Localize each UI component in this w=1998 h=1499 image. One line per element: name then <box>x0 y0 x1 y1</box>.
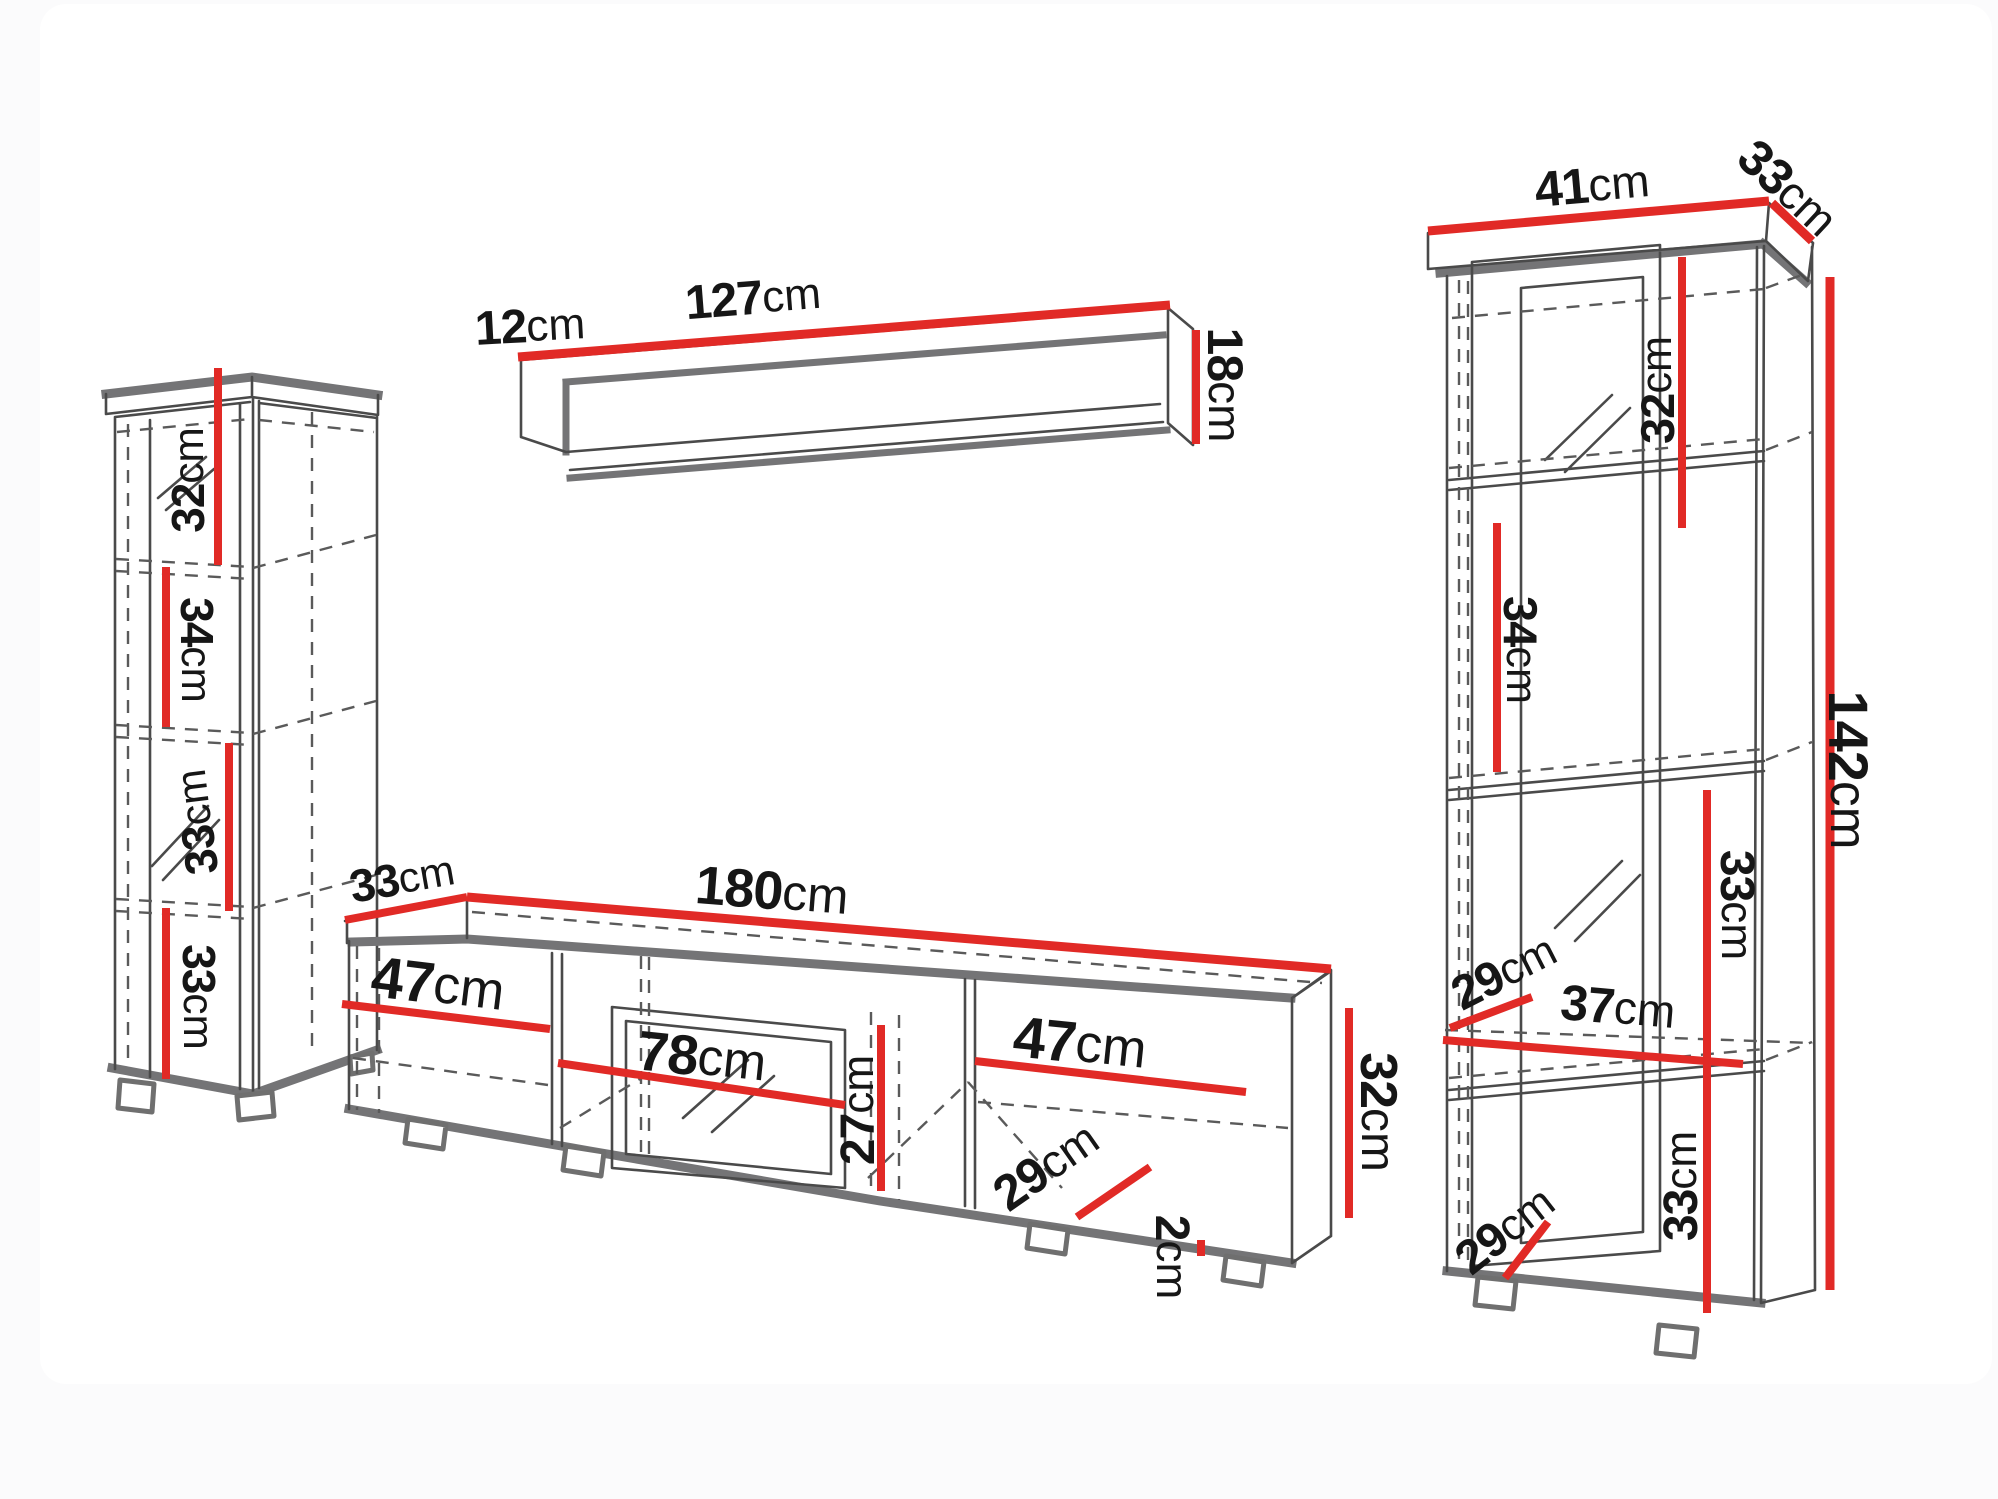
dim-label-shelf-127: 127cm <box>683 266 823 330</box>
dim-unit: cm <box>1820 781 1878 850</box>
dim-unit: cm <box>780 864 850 925</box>
dim-value: 33 <box>345 853 402 913</box>
dim-unit: cm <box>695 1027 769 1092</box>
left-cabinet: 32cm 34cm 33cm 33cm <box>106 368 378 1120</box>
dim-label-right-34: 34cm <box>1495 596 1548 704</box>
dim-unit: cm <box>1199 381 1251 442</box>
dim-unit: cm <box>1713 901 1762 960</box>
dim-value: 33 <box>1655 1190 1708 1241</box>
dim-label-right-depth-33: 33cm <box>1727 128 1849 247</box>
dim-value: 41 <box>1532 157 1590 217</box>
dim-label-tv-180: 180cm <box>693 855 851 927</box>
dim-unit: cm <box>166 767 220 829</box>
dim-label-right-142: 142cm <box>1818 690 1881 849</box>
furniture-dimension-diagram: 32cm 34cm 33cm 33cm 12cm 127cm 18cm <box>0 0 1998 1499</box>
dim-label-left-33b: 33cm <box>173 944 225 1050</box>
dim-line-shelf-127 <box>518 305 1170 357</box>
dim-label-left-34: 34cm <box>171 597 223 703</box>
dim-value: 127 <box>683 271 764 330</box>
dim-unit: cm <box>1073 1013 1150 1079</box>
dim-value: 37 <box>1558 974 1616 1034</box>
dim-unit: cm <box>834 1055 883 1114</box>
dim-unit: cm <box>760 268 823 321</box>
diagram-canvas: 32cm 34cm 33cm 33cm 12cm 127cm 18cm <box>0 0 1998 1499</box>
right-cabinet-outline <box>1428 203 1815 1303</box>
dim-value: 34 <box>171 597 223 648</box>
dim-unit: cm <box>1612 981 1678 1038</box>
dim-label-tv-27: 27cm <box>832 1055 885 1165</box>
dim-label-right-41: 41cm <box>1532 152 1651 218</box>
dim-unit: cm <box>525 299 586 351</box>
dim-value: 2 <box>1146 1215 1199 1241</box>
dim-value: 12 <box>474 300 528 356</box>
dim-line-tv-width-180 <box>467 897 1331 969</box>
dim-unit: cm <box>1497 646 1545 704</box>
dim-value: 32 <box>1631 394 1684 444</box>
right-cabinet: 41cm 33cm 32cm 34cm 142cm 33cm 29cm 37cm… <box>1428 128 1881 1357</box>
dim-line-right-inner-37 <box>1443 1040 1743 1064</box>
dim-label-tv-2: 2cm <box>1146 1215 1199 1300</box>
dim-value: 142 <box>1818 690 1881 780</box>
dim-label-left-32: 32cm <box>162 427 214 533</box>
dim-unit: cm <box>1148 1240 1197 1299</box>
dim-unit: cm <box>430 954 508 1021</box>
dim-label-right-33-upper: 33cm <box>1711 850 1764 960</box>
left-cabinet-panel-edges <box>106 377 378 1094</box>
dim-label-right-32: 32cm <box>1631 336 1684 444</box>
wall-shelf: 12cm 127cm 18cm <box>474 266 1253 478</box>
dim-unit: cm <box>176 993 223 1049</box>
dim-label-tv-78: 78cm <box>635 1018 770 1094</box>
dim-line-tv-inner-29 <box>1077 1167 1150 1217</box>
dim-label-tv-47-right: 47cm <box>1010 1004 1150 1083</box>
dim-unit: cm <box>1352 1108 1405 1172</box>
dim-label-left-33a: 33cm <box>164 766 228 877</box>
dim-unit: cm <box>1586 154 1652 211</box>
tv-stand: 33cm 180cm 47cm 78cm 27cm 47cm 29cm 2cm … <box>342 843 1407 1299</box>
left-cabinet-hidden-lines <box>116 412 376 1062</box>
wall-shelf-panel-edges <box>566 335 1167 478</box>
dim-unit: cm <box>165 427 212 483</box>
dim-value: 18 <box>1197 328 1253 382</box>
dim-value: 180 <box>693 855 785 922</box>
dim-value: 47 <box>368 944 438 1016</box>
dim-label-shelf-12: 12cm <box>474 297 587 356</box>
dim-label-shelf-18: 18cm <box>1197 328 1253 443</box>
dim-value: 33 <box>1711 850 1764 901</box>
dim-value: 27 <box>832 1114 885 1165</box>
dim-value: 32 <box>162 484 214 533</box>
dim-unit: cm <box>1633 336 1681 394</box>
dim-value: 32 <box>1349 1052 1407 1108</box>
dim-label-right-33-lower: 33cm <box>1655 1131 1708 1241</box>
dim-unit: cm <box>1657 1131 1706 1190</box>
dim-label-right-37: 37cm <box>1558 974 1677 1040</box>
left-cabinet-outline <box>106 377 378 1092</box>
dim-label-tv-32: 32cm <box>1349 1052 1407 1172</box>
dim-value: 78 <box>635 1018 702 1087</box>
dim-unit: cm <box>174 646 221 702</box>
dim-value: 34 <box>1495 596 1548 647</box>
dim-unit: cm <box>394 846 458 902</box>
dim-value: 33 <box>173 944 225 993</box>
dim-value: 47 <box>1010 1004 1079 1075</box>
dim-value: 33 <box>171 822 229 877</box>
